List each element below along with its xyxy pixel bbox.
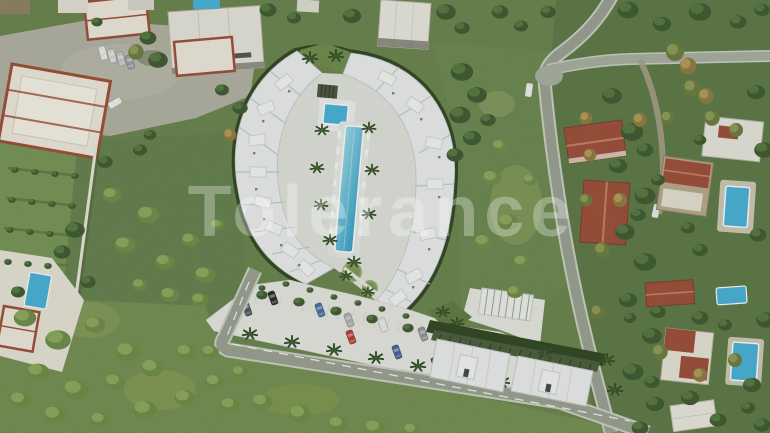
aerial-site-photo: Tolerance	[0, 0, 770, 433]
aerial-site-plan: Tolerance	[0, 0, 770, 433]
watermark-text: Tolerance	[188, 172, 577, 252]
